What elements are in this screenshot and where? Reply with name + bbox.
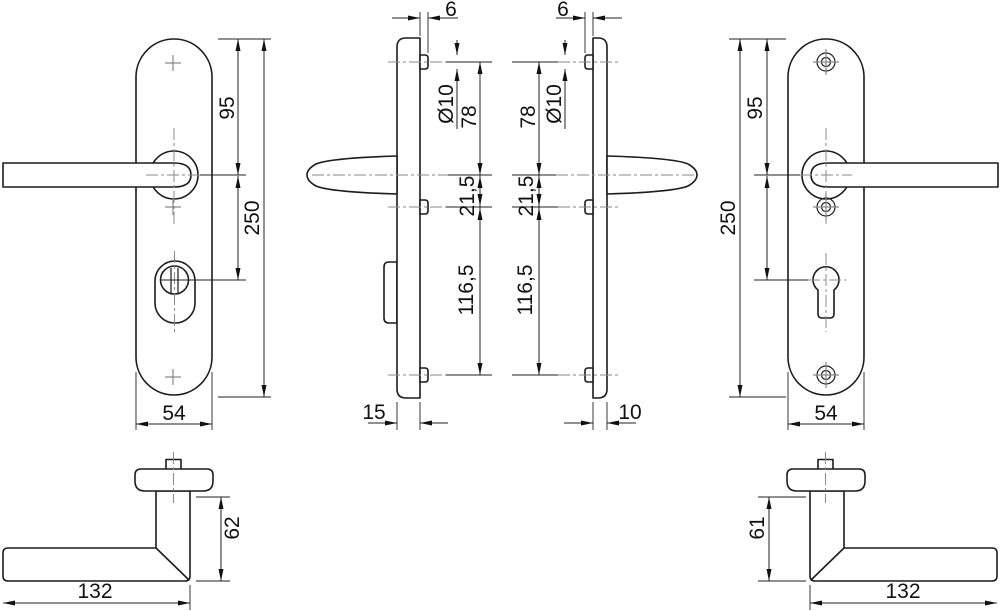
dim-label-mid-spacing: 21,5 xyxy=(515,176,538,217)
dim-label-depth: 15 xyxy=(362,401,385,424)
technical-drawing-page: 95 250 54 xyxy=(0,0,1000,611)
view-handle-top-inside: 62 132 xyxy=(3,452,244,610)
cylinder-cover-profile xyxy=(384,262,397,323)
dim-label-lug-diameter: Ø10 xyxy=(435,84,458,124)
dim-label-width: 54 xyxy=(162,402,186,425)
lever-handle-bar xyxy=(811,163,998,187)
lever-arm xyxy=(810,491,997,581)
dim-label-length: 132 xyxy=(885,580,920,603)
dim-label-top-spacing: 78 xyxy=(517,105,540,128)
view-handle-top-outside: 61 132 xyxy=(746,452,997,610)
dim-label-top-to-handle: 95 xyxy=(216,96,239,119)
view-front-inside: 95 250 54 xyxy=(3,39,271,430)
dim-label-top-to-handle: 95 xyxy=(744,96,767,119)
plate-profile xyxy=(397,38,420,398)
view-profile-outside: 6 Ø10 78 21,5 116,5 10 xyxy=(512,0,697,430)
dim-label-projection: 61 xyxy=(746,516,769,539)
dim-label-lug-diameter: Ø10 xyxy=(543,84,566,124)
dim-label-lug-offset: 6 xyxy=(445,0,457,21)
door-fitting-dimension-drawing: 95 250 54 xyxy=(0,0,1000,611)
dim-label-projection: 62 xyxy=(221,516,244,539)
dim-label-top-spacing: 78 xyxy=(458,105,481,128)
dim-label-depth: 10 xyxy=(618,401,641,424)
dim-label-bottom-spacing: 116,5 xyxy=(514,265,537,316)
dim-label-bottom-spacing: 116,5 xyxy=(455,265,478,316)
dim-label-height: 250 xyxy=(241,200,264,235)
view-front-outside: 95 250 54 xyxy=(717,39,998,430)
dim-label-width: 54 xyxy=(814,402,838,425)
dim-label-mid-spacing: 21,5 xyxy=(456,176,479,217)
dim-label-height: 250 xyxy=(717,200,740,235)
dim-label-lug-offset: 6 xyxy=(557,0,569,21)
lever-arm xyxy=(3,491,190,581)
plate-profile xyxy=(593,38,607,398)
dim-label-length: 132 xyxy=(77,580,112,603)
view-profile-inside: 6 Ø10 78 21,5 116,5 15 xyxy=(307,0,492,430)
